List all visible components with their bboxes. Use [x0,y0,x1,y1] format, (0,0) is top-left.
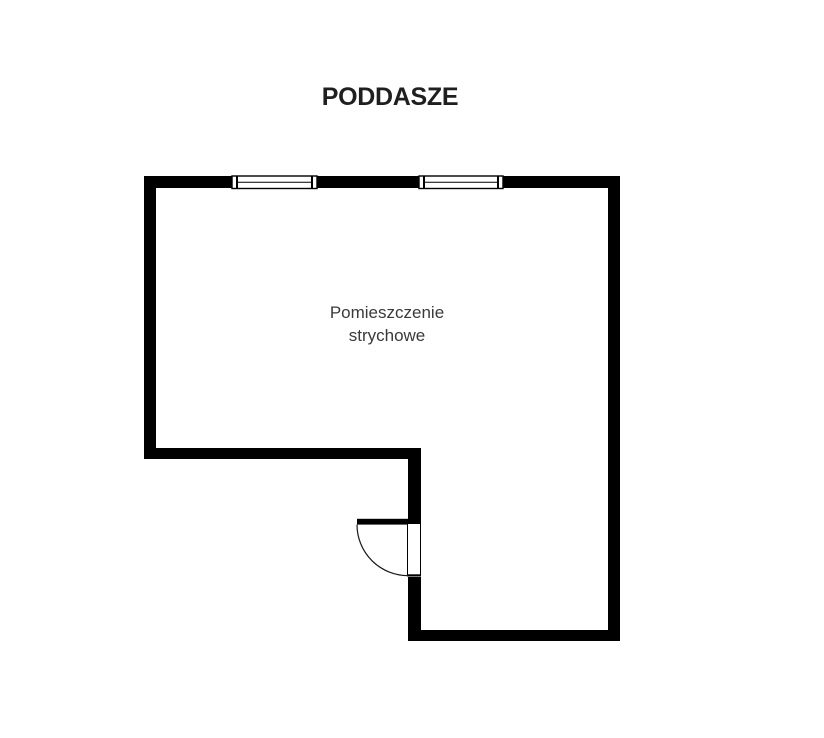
door-leaf [357,519,408,525]
door-swing-arc [357,525,408,576]
window-top-left [232,176,317,189]
walls [144,176,620,641]
window-top-right [419,176,503,189]
room-label-line1: Pomieszczenie [0,301,774,324]
floor-plan-page: PODDASZE [0,0,824,738]
door [357,519,422,577]
room-label: Pomieszczenie strychowe [0,301,774,347]
door-frame [408,524,421,577]
floor-plan-svg [0,0,824,738]
room-label-line2: strychowe [0,324,774,347]
